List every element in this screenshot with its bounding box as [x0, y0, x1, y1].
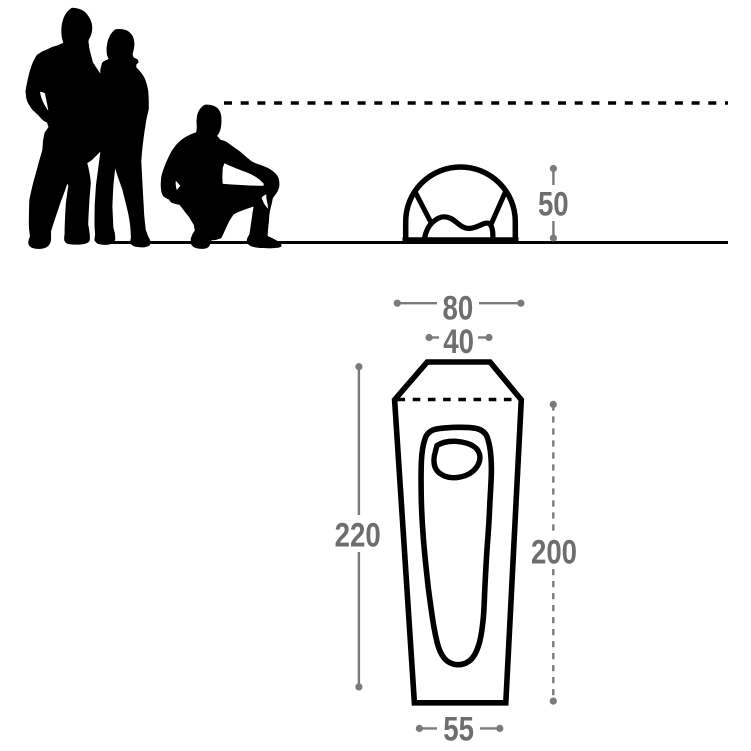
svg-text:200: 200 — [531, 532, 577, 571]
svg-text:40: 40 — [443, 322, 474, 361]
svg-text:50: 50 — [538, 185, 569, 224]
svg-text:220: 220 — [335, 515, 381, 554]
svg-text:55: 55 — [443, 709, 474, 748]
